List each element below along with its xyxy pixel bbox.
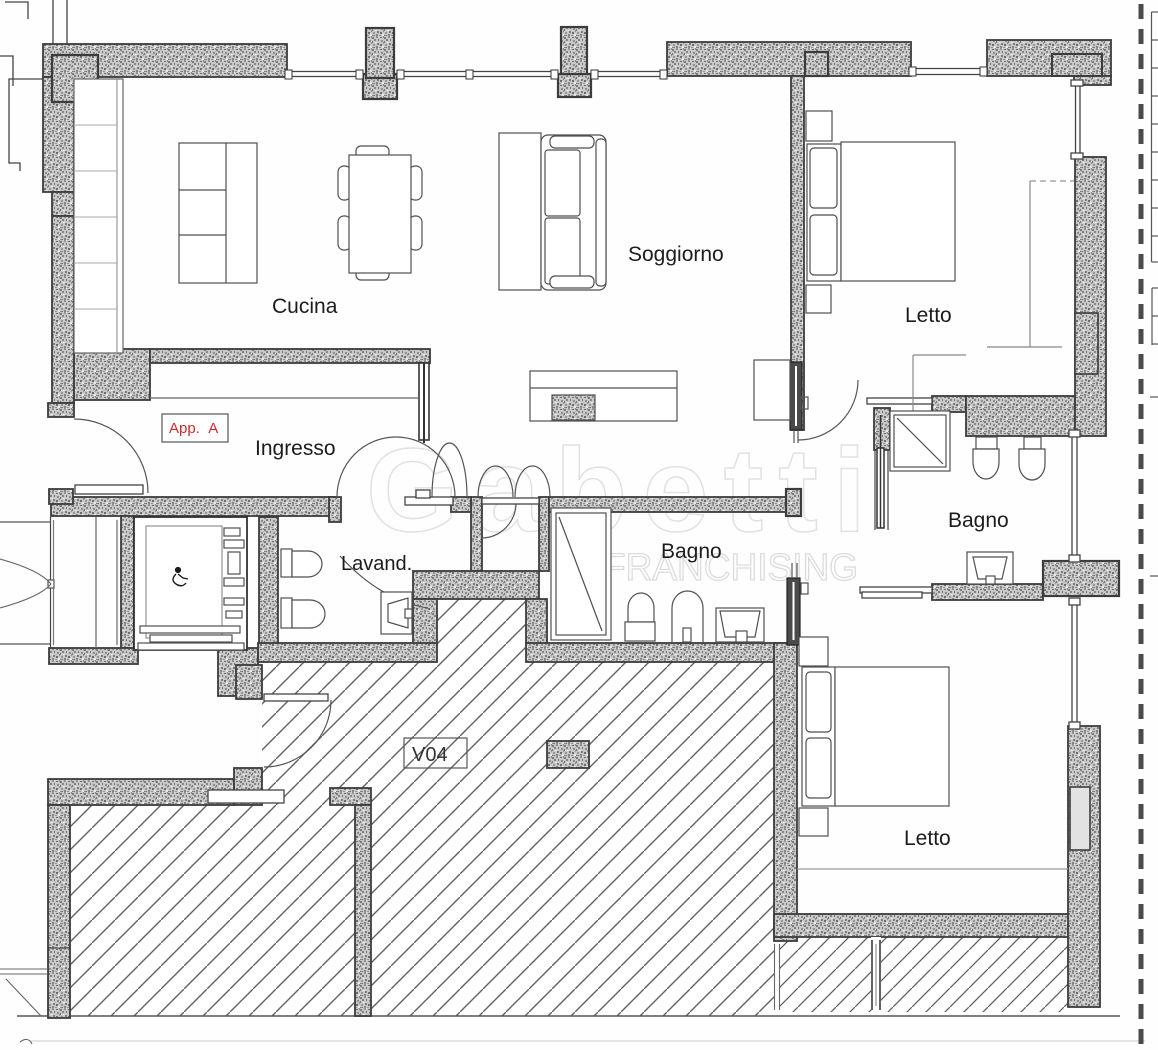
svg-text:FRANCHISING: FRANCHISING xyxy=(603,547,858,589)
svg-text:Bagno: Bagno xyxy=(661,540,722,563)
svg-text:Gabetti: Gabetti xyxy=(366,424,881,557)
svg-text:Letto: Letto xyxy=(905,304,952,327)
svg-text:App. A: App. A xyxy=(169,420,218,437)
svg-text:Letto: Letto xyxy=(904,827,951,850)
svg-text:Ingresso: Ingresso xyxy=(255,437,336,460)
svg-text:Soggiorno: Soggiorno xyxy=(628,243,724,266)
svg-text:Lavand.: Lavand. xyxy=(341,553,412,575)
svg-text:V04: V04 xyxy=(412,744,448,766)
svg-text:Bagno: Bagno xyxy=(948,509,1009,532)
svg-text:Cucina: Cucina xyxy=(272,295,338,318)
